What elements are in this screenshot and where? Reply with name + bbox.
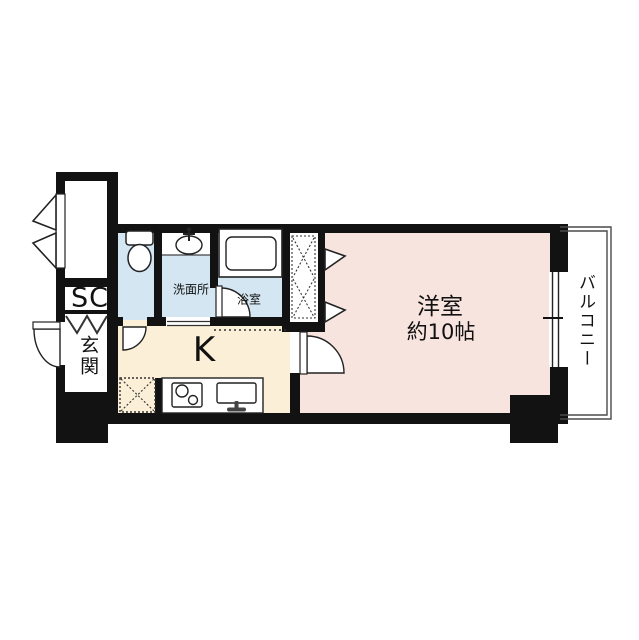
kitchen-counter: [162, 378, 263, 413]
wall: [154, 233, 162, 323]
entrance-door-icon: [33, 322, 60, 367]
toilet-icon: [126, 231, 153, 272]
wall: [56, 365, 65, 395]
balcony-label: バルコニー: [576, 274, 594, 369]
wall: [282, 322, 325, 332]
kitchen-label: K: [193, 332, 215, 368]
counter-stub-wall: [155, 378, 162, 413]
wall: [107, 180, 118, 230]
refrigerator-space-icon: [120, 378, 155, 412]
stove-icon: [172, 383, 202, 407]
washroom-label: 洗面所: [173, 284, 209, 297]
wall: [56, 287, 65, 322]
wall: [282, 224, 290, 332]
western-room-label: 洋室: [417, 295, 463, 319]
western-room-size-label: 約10帖: [407, 321, 476, 343]
wall: [290, 373, 300, 414]
shoe-closet-label: SC: [71, 285, 109, 314]
bathtub-icon: [219, 229, 282, 277]
entrance-step-zigzag: [66, 316, 107, 333]
storage-double-door-icon: [33, 194, 65, 268]
entrance-label: 玄関: [78, 335, 98, 377]
washroom-door-line: [166, 317, 210, 326]
wall: [318, 233, 325, 323]
bathroom-label: 浴室: [237, 294, 261, 307]
wall: [56, 172, 118, 181]
wall: [56, 180, 65, 195]
wall: [210, 233, 218, 288]
corner-column: [510, 395, 558, 443]
bottom-outer-wall: [107, 413, 568, 424]
wall: [107, 317, 123, 326]
floorplan-image: SC 玄関 洗面所 浴室 K 洋室 約10帖 バルコニー: [0, 0, 639, 640]
floorplan-drawing: [0, 0, 639, 640]
top-outer-wall: [107, 224, 568, 233]
wall: [210, 317, 290, 326]
entrance-corner-column: [56, 392, 108, 443]
